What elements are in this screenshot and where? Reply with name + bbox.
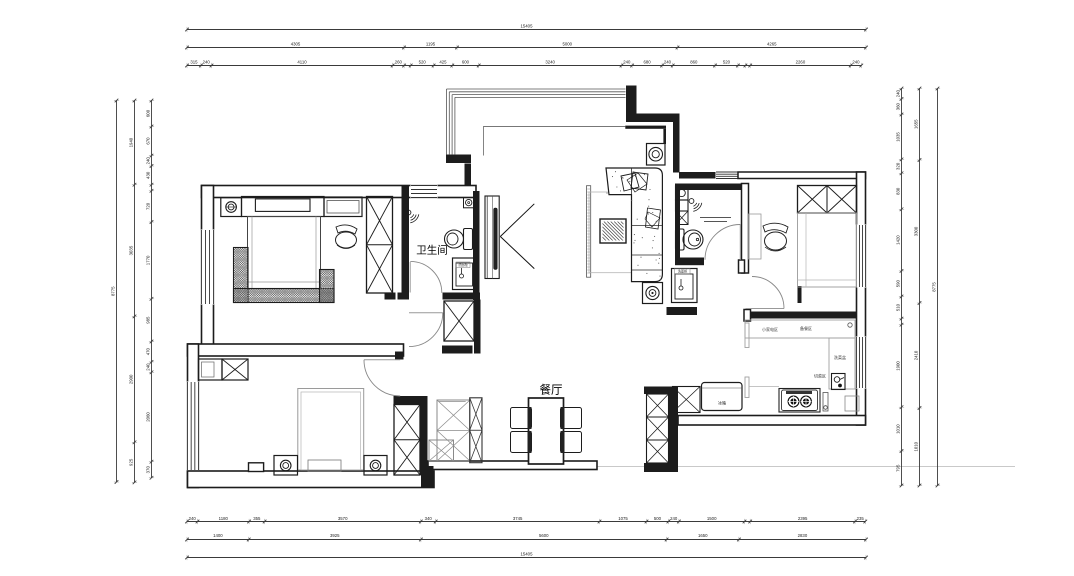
svg-text:240: 240 — [896, 90, 901, 98]
svg-text:2395: 2395 — [798, 516, 808, 521]
svg-text:2060: 2060 — [146, 412, 151, 422]
svg-text:1035: 1035 — [896, 132, 901, 142]
svg-text:680: 680 — [644, 60, 652, 65]
svg-text:8775: 8775 — [111, 286, 116, 296]
svg-text:240: 240 — [852, 60, 860, 65]
svg-text:1400: 1400 — [213, 533, 223, 538]
svg-text:925: 925 — [129, 458, 134, 466]
svg-text:卫生间: 卫生间 — [416, 244, 448, 257]
svg-text:餐厅: 餐厅 — [540, 383, 563, 397]
svg-text:洗面柜: 洗面柜 — [678, 269, 688, 274]
svg-text:510: 510 — [896, 303, 901, 311]
svg-text:1655: 1655 — [914, 119, 919, 129]
svg-text:500: 500 — [654, 516, 662, 521]
svg-text:240: 240 — [670, 516, 678, 521]
svg-text:240: 240 — [146, 363, 151, 371]
svg-text:985: 985 — [146, 316, 151, 324]
svg-text:2830: 2830 — [798, 533, 808, 538]
svg-text:425: 425 — [439, 60, 447, 65]
svg-text:4110: 4110 — [297, 60, 307, 65]
svg-text:340: 340 — [425, 516, 433, 521]
svg-text:15405: 15405 — [521, 552, 534, 557]
svg-text:520: 520 — [419, 60, 427, 65]
svg-text:4265: 4265 — [767, 42, 777, 47]
svg-text:1770: 1770 — [146, 255, 151, 265]
svg-text:590: 590 — [896, 280, 901, 288]
svg-text:1650: 1650 — [698, 533, 708, 538]
svg-text:600: 600 — [462, 60, 470, 65]
svg-text:4305: 4305 — [291, 42, 301, 47]
svg-text:240: 240 — [664, 60, 672, 65]
svg-text:15405: 15405 — [521, 24, 534, 29]
svg-text:1500: 1500 — [707, 516, 717, 521]
svg-text:1010: 1010 — [914, 441, 919, 451]
svg-text:1180: 1180 — [219, 516, 229, 521]
svg-text:315: 315 — [190, 60, 198, 65]
svg-text:1420: 1420 — [896, 235, 901, 245]
svg-text:3925: 3925 — [330, 533, 340, 538]
svg-text:260: 260 — [395, 60, 403, 65]
svg-text:360: 360 — [896, 103, 901, 111]
svg-text:2410: 2410 — [914, 350, 919, 360]
svg-text:795: 795 — [896, 464, 901, 472]
svg-text:2900: 2900 — [129, 374, 134, 384]
svg-text:洗菜盆: 洗菜盆 — [834, 354, 846, 360]
svg-text:5600: 5600 — [539, 533, 549, 538]
svg-text:320: 320 — [896, 162, 901, 170]
svg-text:切菜区: 切菜区 — [814, 373, 826, 379]
svg-text:520: 520 — [723, 60, 731, 65]
svg-text:240: 240 — [623, 60, 631, 65]
svg-text:600: 600 — [146, 109, 151, 117]
svg-text:240: 240 — [203, 60, 211, 65]
svg-text:备餐区: 备餐区 — [800, 325, 812, 331]
svg-text:470: 470 — [146, 348, 151, 356]
svg-text:235: 235 — [857, 516, 865, 521]
svg-text:860: 860 — [690, 60, 698, 65]
svg-text:冰箱: 冰箱 — [718, 400, 726, 406]
svg-text:240: 240 — [189, 516, 197, 521]
svg-text:5000: 5000 — [562, 42, 572, 47]
svg-text:1940: 1940 — [129, 137, 134, 147]
svg-text:1010: 1010 — [896, 424, 901, 434]
svg-text:670: 670 — [146, 137, 151, 145]
svg-text:370: 370 — [146, 466, 151, 474]
svg-text:240: 240 — [146, 157, 151, 165]
svg-text:720: 720 — [146, 202, 151, 210]
svg-text:1075: 1075 — [618, 516, 628, 521]
svg-text:洗面柜: 洗面柜 — [458, 262, 468, 267]
svg-text:3035: 3035 — [129, 245, 134, 255]
svg-text:1195: 1195 — [426, 42, 436, 47]
svg-text:355: 355 — [253, 516, 261, 521]
svg-text:2260: 2260 — [796, 60, 806, 65]
svg-text:3240: 3240 — [545, 60, 555, 65]
svg-text:830: 830 — [896, 187, 901, 195]
svg-text:8775: 8775 — [932, 282, 937, 292]
svg-text:1900: 1900 — [896, 361, 901, 371]
svg-text:小家电区: 小家电区 — [762, 326, 778, 332]
svg-text:3300: 3300 — [914, 226, 919, 236]
svg-text:3570: 3570 — [338, 516, 348, 521]
svg-text:430: 430 — [146, 171, 151, 179]
svg-text:3745: 3745 — [513, 516, 523, 521]
